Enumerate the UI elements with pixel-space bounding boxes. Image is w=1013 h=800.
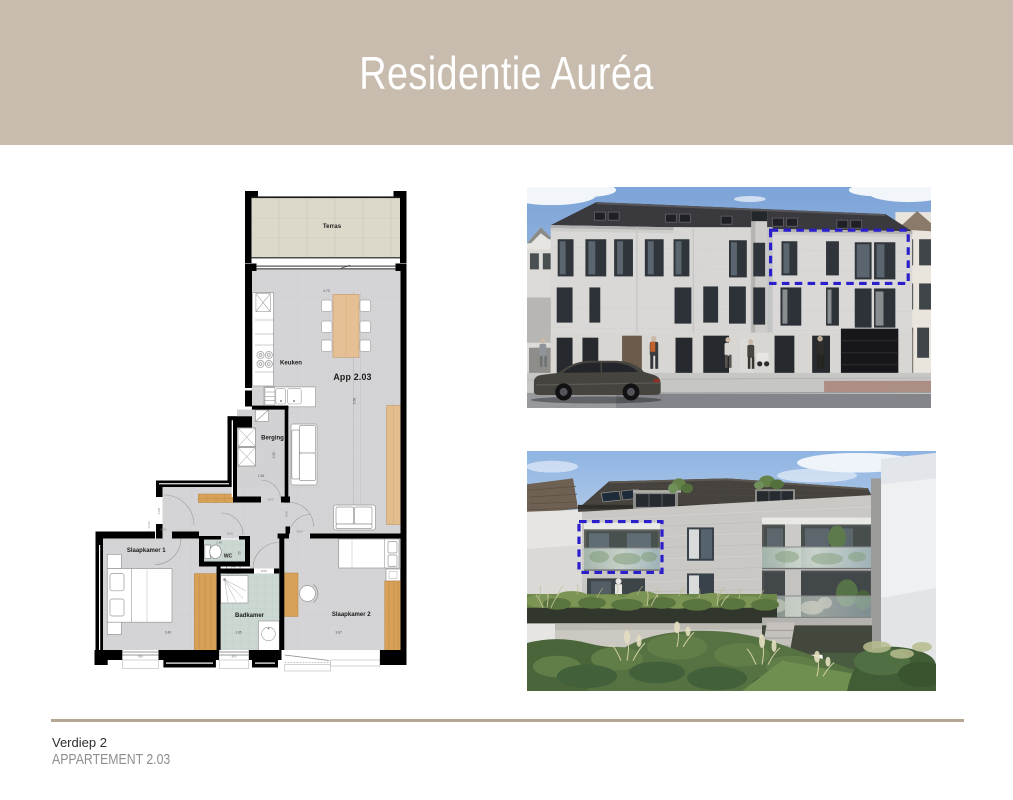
svg-text:1.85: 1.85: [235, 631, 242, 635]
svg-text:04.80: 04.80: [157, 507, 161, 514]
svg-text:95: 95: [238, 551, 242, 555]
svg-text:900D: 900D: [267, 498, 273, 502]
svg-text:900: 900: [138, 655, 143, 659]
svg-text:1.40: 1.40: [216, 541, 222, 545]
svg-text:2.90: 2.90: [272, 452, 276, 459]
svg-text:900: 900: [232, 655, 237, 659]
svg-text:900D: 900D: [296, 530, 302, 534]
svg-text:WC: WC: [224, 554, 233, 560]
svg-text:Slaapkamer 1: Slaapkamer 1: [127, 548, 166, 554]
svg-text:900D: 900D: [285, 511, 289, 517]
svg-text:Berging: Berging: [261, 436, 284, 442]
svg-text:3.40: 3.40: [165, 631, 172, 635]
svg-text:900D: 900D: [160, 528, 166, 532]
svg-text:Keuken: Keuken: [280, 359, 302, 366]
svg-text:1.55: 1.55: [258, 474, 265, 478]
svg-text:900D: 900D: [227, 532, 233, 536]
svg-text:900D: 900D: [261, 569, 267, 573]
svg-text:Terras: Terras: [323, 223, 342, 230]
svg-text:App 2.03: App 2.03: [333, 372, 371, 382]
svg-text:9.58: 9.58: [353, 398, 357, 405]
svg-text:Badkamer: Badkamer: [235, 613, 265, 619]
svg-text:E1.30: E1.30: [147, 521, 151, 528]
svg-text:3.87: 3.87: [335, 631, 342, 635]
svg-text:4.70: 4.70: [323, 289, 330, 293]
svg-text:Slaapkamer 2: Slaapkamer 2: [332, 612, 371, 618]
